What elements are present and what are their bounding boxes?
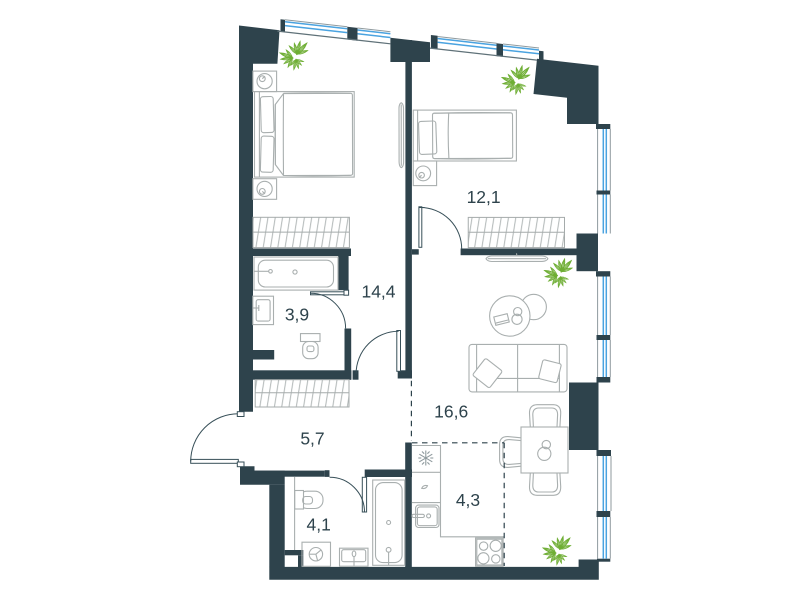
svg-text:4,1: 4,1	[307, 514, 331, 534]
svg-text:4,3: 4,3	[456, 490, 480, 510]
svg-text:16,6: 16,6	[434, 401, 468, 421]
svg-text:5,7: 5,7	[300, 429, 324, 449]
svg-text:3,9: 3,9	[285, 304, 309, 324]
svg-text:12,1: 12,1	[467, 187, 501, 207]
svg-text:14,4: 14,4	[361, 282, 395, 302]
